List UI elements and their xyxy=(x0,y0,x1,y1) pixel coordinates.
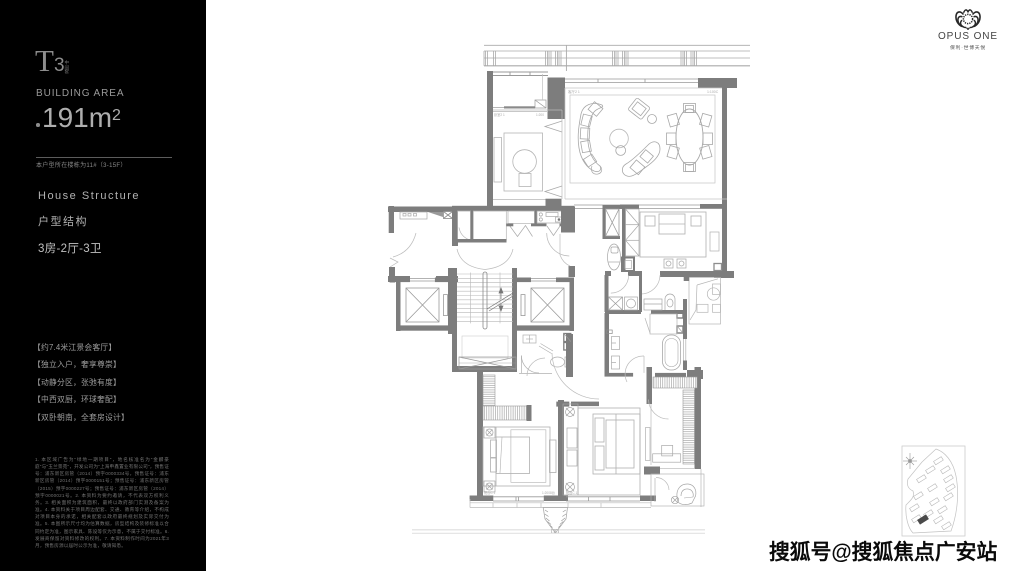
svg-text:客厅2 1: 客厅2 1 xyxy=(568,89,580,94)
svg-text:卧室2 1: 卧室2 1 xyxy=(494,112,505,117)
svg-text:阳台C 1: 阳台C 1 xyxy=(566,490,578,495)
svg-text:1:2008台: 1:2008台 xyxy=(542,490,555,495)
svg-text:阳台C 1: 阳台C 1 xyxy=(484,490,496,495)
svg-text:1:100C: 1:100C xyxy=(707,90,719,94)
svg-text:1:200: 1:200 xyxy=(536,113,544,117)
